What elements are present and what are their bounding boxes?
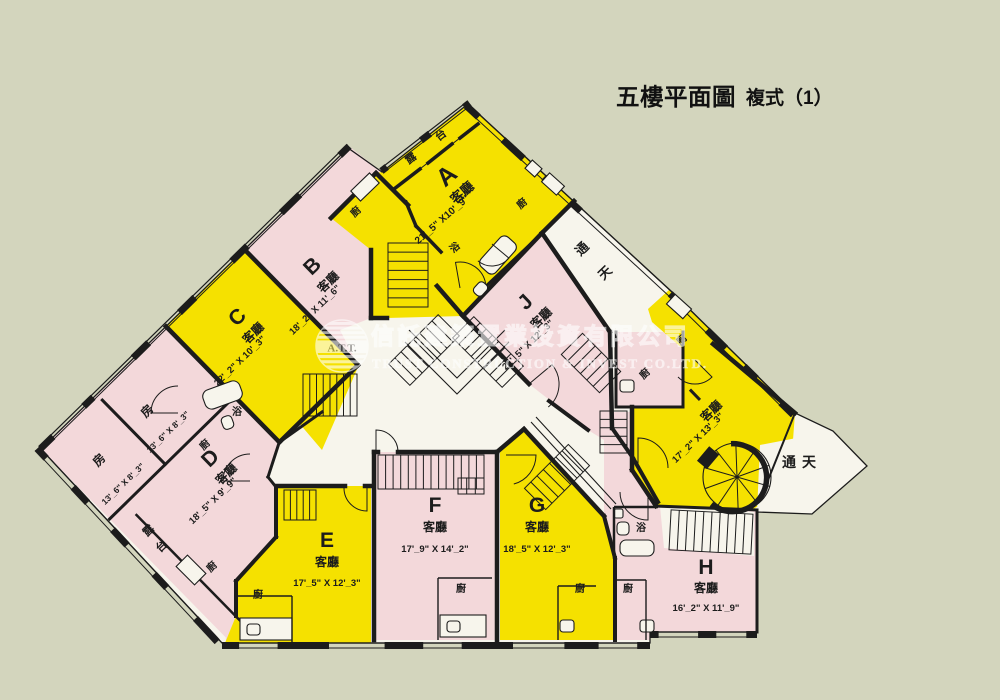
svg-text:浴: 浴: [232, 405, 243, 418]
svg-text:16'_2" X 11'_9": 16'_2" X 11'_9": [673, 603, 740, 614]
svg-text:複式（1）: 複式（1）: [745, 86, 833, 109]
svg-text:18'_5" X 12'_3": 18'_5" X 12'_3": [503, 544, 570, 555]
svg-text:E: E: [320, 529, 334, 552]
svg-text:浴: 浴: [636, 521, 647, 534]
svg-text:廚: 廚: [253, 588, 263, 601]
svg-text:H: H: [698, 556, 713, 579]
svg-text:客廳: 客廳: [693, 580, 718, 595]
svg-text:客廳: 客廳: [524, 519, 549, 534]
svg-text:A.T.T.: A.T.T.: [327, 343, 356, 355]
svg-text:廚: 廚: [456, 582, 466, 595]
svg-text:廚: 廚: [575, 582, 585, 595]
svg-text:信託建築置業投資有限公司: 信託建築置業投資有限公司: [371, 323, 690, 349]
svg-text:F: F: [429, 494, 442, 517]
svg-text:17'_9" X 14'_2": 17'_9" X 14'_2": [401, 544, 468, 555]
svg-text:17'_5" X 12'_3": 17'_5" X 12'_3": [293, 578, 360, 589]
svg-text:TRUST CONSTRUCTION & INVEST CO: TRUST CONSTRUCTION & INVEST CO.LTD.: [372, 356, 708, 371]
svg-text:五樓平面圖: 五樓平面圖: [616, 84, 736, 110]
svg-text:通天: 通天: [782, 454, 822, 470]
svg-text:客廳: 客廳: [422, 519, 447, 534]
svg-text:G: G: [529, 494, 545, 517]
svg-text:廚: 廚: [623, 582, 633, 595]
svg-text:客廳: 客廳: [314, 554, 339, 569]
